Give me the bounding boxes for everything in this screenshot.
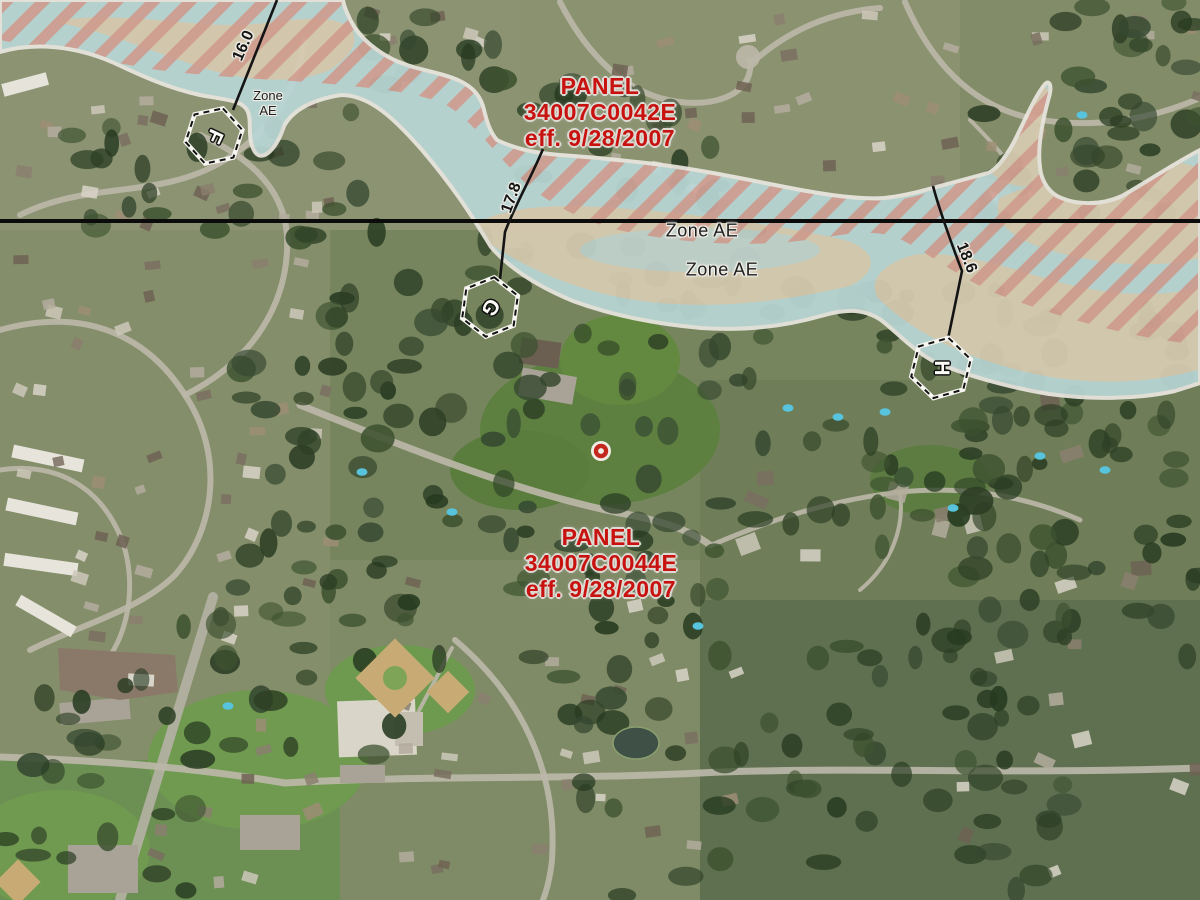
map-viewport[interactable]: PANEL 34007C0042E eff. 9/28/2007 PANEL 3… [0,0,1200,900]
satellite-map-canvas [0,0,1200,900]
location-marker[interactable] [591,441,611,461]
pond [613,727,659,759]
